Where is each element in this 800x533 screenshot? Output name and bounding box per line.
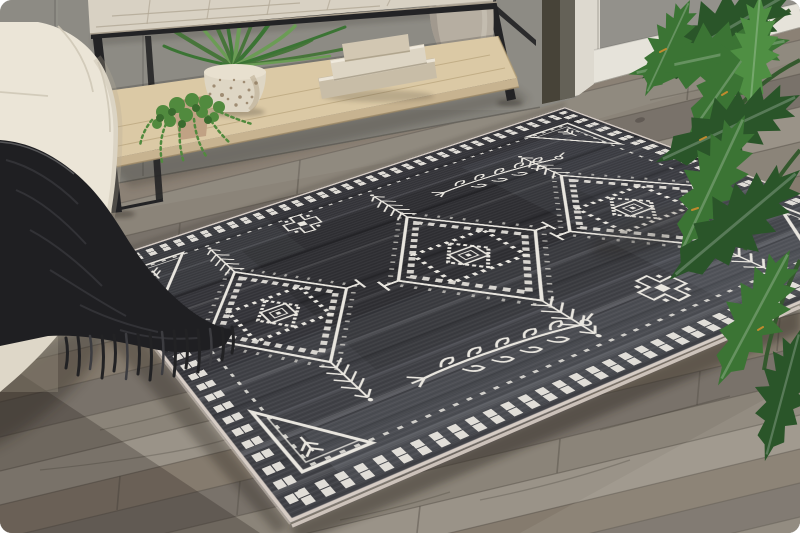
foreground-layer <box>0 0 800 533</box>
throw-blanket <box>0 140 234 380</box>
philodendron <box>586 0 800 469</box>
living-room-photo <box>0 0 800 533</box>
rug-edge-binding <box>92 268 800 526</box>
